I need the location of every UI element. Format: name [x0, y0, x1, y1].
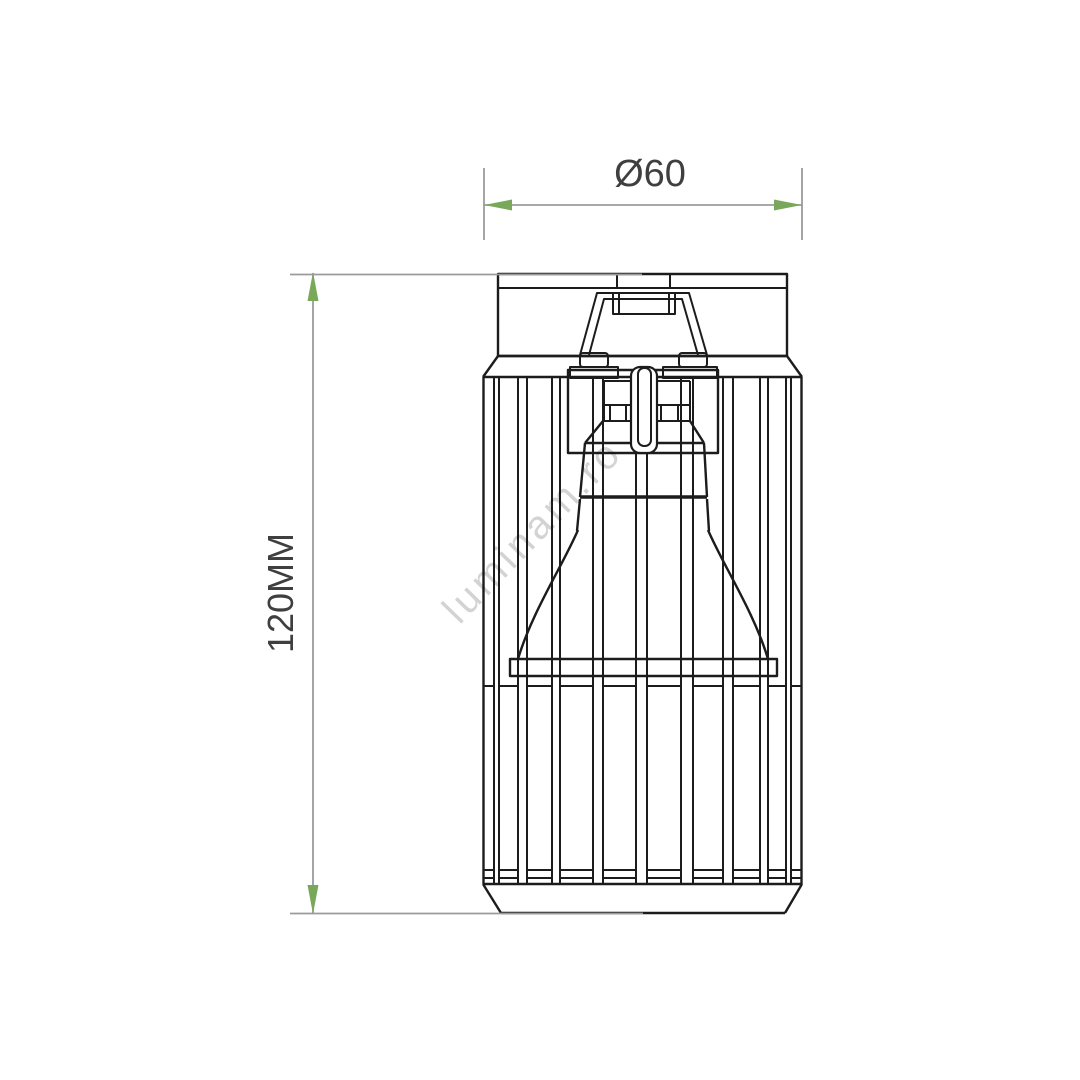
arrowhead-down-icon — [308, 885, 319, 914]
cage-bar — [723, 377, 733, 884]
cage-bar — [552, 377, 560, 884]
socket-pin-left — [610, 405, 626, 421]
cage-bottom-band — [483, 884, 802, 913]
cage-bar — [494, 377, 499, 884]
cage-bar — [518, 377, 527, 884]
fixture-drawing — [483, 274, 802, 913]
socket-pin-right — [661, 405, 678, 421]
diameter-label: Ø60 — [614, 153, 686, 195]
cage-bar — [760, 377, 768, 884]
technical-drawing-canvas: Ø60 120MM — [0, 0, 1080, 1080]
drawing-page: Ø60 120MM — [0, 0, 1080, 1080]
terminal-block — [613, 293, 675, 314]
arrowhead-up-icon — [308, 272, 319, 301]
arrowhead-right-icon — [774, 200, 802, 211]
height-label: 120MM — [260, 533, 301, 653]
arrowhead-left-icon — [484, 200, 512, 211]
diameter-dimension: Ø60 — [484, 153, 802, 240]
height-dimension: 120MM — [260, 272, 319, 914]
cage-bar — [786, 377, 791, 884]
socket-stem — [631, 367, 657, 453]
